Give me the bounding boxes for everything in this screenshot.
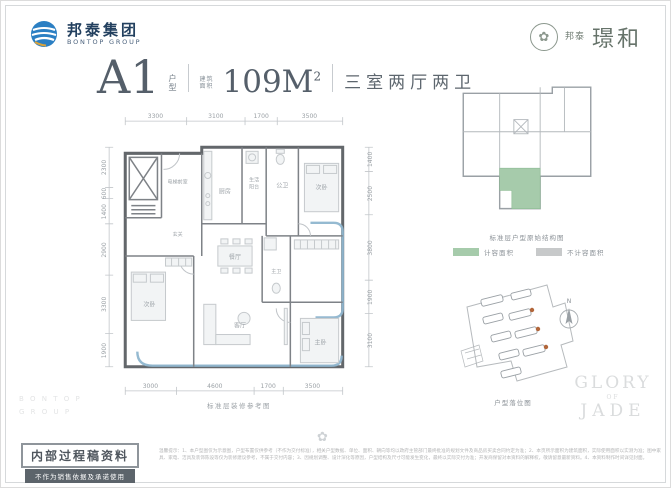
room-label-master-bath: 主卫 — [271, 268, 281, 275]
project-logo: ✿ 邦泰 璟和 — [530, 21, 642, 53]
dim-right-5: 3100 — [367, 333, 374, 349]
room-label-service-balcony-1: 生活 — [249, 177, 259, 184]
dim-right-1: 1400 — [367, 152, 374, 168]
dim-top-3: 1700 — [253, 113, 269, 120]
area-prefix: 建筑 面积 — [200, 76, 214, 91]
dim-top-1: 3300 — [148, 113, 164, 120]
brand-name-en: BONTOP GROUP — [67, 39, 141, 46]
unit-title: A1 户 型 建筑 面积 109M2 三室两厅两卫 — [97, 59, 476, 96]
medallion-icon: ✿ — [530, 23, 558, 51]
disclaimer-text: 温馨提示：1、本户型图仅为示意图，户型布置仅供参考（不作为交付标准），相关户型数… — [159, 448, 661, 463]
unit-code: A1 — [97, 59, 160, 96]
dim-bottom-2: 4600 — [207, 383, 223, 390]
room-label-elevator: 电梯前室 — [168, 179, 188, 186]
dim-right-2: 2500 — [367, 186, 374, 202]
legend-swatch-green — [453, 248, 479, 256]
room-label-bedroom-left: 次卧 — [143, 300, 155, 308]
bontop-watermark: B O N T O P G R O U P — [19, 393, 82, 420]
globe-icon — [29, 19, 59, 49]
dim-left-5: 3300 — [101, 296, 108, 312]
room-label-foyer: 玄关 — [173, 231, 183, 238]
internal-draft-stamp: 内部过程稿资料 不作为销售依据及承诺使用 — [21, 443, 139, 483]
stamp-title: 内部过程稿资料 — [21, 443, 139, 468]
keyplan-drawing — [441, 79, 613, 229]
floorplan-caption: 标准层装修参考图 — [93, 400, 385, 410]
legend-label-counted: 计容面积 — [484, 247, 514, 257]
title-divider — [188, 64, 189, 92]
area-value: 109M2 — [223, 69, 322, 95]
dim-right-3: 3800 — [367, 240, 374, 256]
project-logo-prefix: 邦泰 — [565, 32, 585, 42]
room-label-dining: 餐厅 — [229, 253, 241, 261]
dim-left-4: 2900 — [101, 242, 108, 258]
room-label-kitchen: 厨房 — [219, 188, 231, 196]
keyplan-caption: 标准层户型原始结构图 — [441, 232, 613, 242]
dim-top-2: 3100 — [208, 113, 224, 120]
dim-bottom-4: 3500 — [305, 383, 321, 390]
floorplan-poster: 邦泰集团 BONTOP GROUP ✿ 邦泰 璟和 A1 户 型 建筑 面积 1… — [0, 0, 671, 488]
legend-swatch-gray — [536, 248, 562, 256]
dim-top-4: 3500 — [302, 113, 318, 120]
room-label-bedroom-top: 次卧 — [316, 184, 328, 192]
siteplan-caption: 户型落位图 — [453, 397, 573, 407]
compass-north-label: N — [567, 298, 572, 305]
unit-code-suffix: 户 型 — [169, 74, 177, 93]
glory-of-jade-watermark: GLORY OF JADE — [567, 375, 659, 421]
legend-item-counted: 计容面积 — [453, 247, 514, 257]
dim-left-2: 600 — [101, 188, 108, 200]
room-label-living: 客厅 — [234, 321, 246, 329]
title-divider-2 — [332, 64, 333, 92]
dim-bottom-3: 1700 — [261, 383, 277, 390]
project-logo-name: 璟和 — [592, 21, 642, 53]
dim-left-6: 1900 — [101, 343, 108, 359]
room-label-service-balcony-2: 阳台 — [249, 184, 259, 191]
dim-right-4: 1900 — [367, 289, 374, 305]
dim-left-3: 1400 — [101, 204, 108, 220]
room-label-guest-bath: 公卫 — [276, 183, 288, 190]
room-label-master-bedroom: 主卧 — [315, 339, 327, 347]
floorplan-drawing: 3300 3100 1700 3500 3000 4600 1700 3500 … — [93, 105, 385, 407]
flower-ornament-icon: ✿ — [317, 430, 328, 445]
stamp-subtitle: 不作为销售依据及承诺使用 — [25, 469, 135, 483]
bontop-group-logo: 邦泰集团 BONTOP GROUP — [29, 19, 141, 49]
brand-name-cn: 邦泰集团 — [67, 22, 141, 39]
legend-item-uncounted: 不计容面积 — [536, 247, 605, 257]
legend-label-uncounted: 不计容面积 — [567, 247, 605, 257]
site-hatch-wedge — [461, 345, 483, 367]
dim-left-1: 2300 — [101, 160, 108, 176]
medallion-flower-glyph: ✿ — [539, 30, 550, 45]
dim-bottom-1: 3000 — [143, 383, 159, 390]
area-legend: 计容面积 不计容面积 — [453, 247, 605, 257]
